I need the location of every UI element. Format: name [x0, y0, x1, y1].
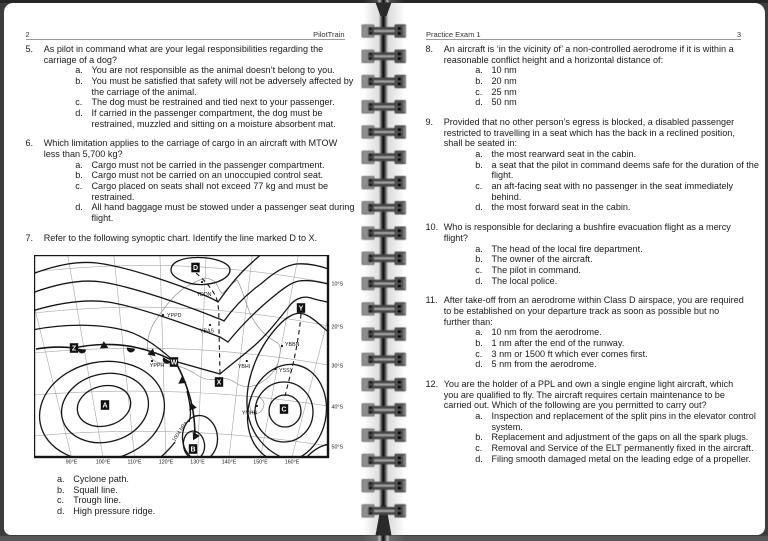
- svg-text:W: W: [171, 360, 178, 367]
- svg-text:30°S: 30°S: [332, 364, 344, 370]
- svg-text:YBBN: YBBN: [285, 342, 300, 348]
- svg-text:YBAS: YBAS: [200, 329, 215, 335]
- svg-text:Z: Z: [72, 346, 77, 353]
- svg-text:Y: Y: [299, 306, 304, 313]
- svg-text:YPPD: YPPD: [167, 313, 182, 319]
- svg-text:10°S: 10°S: [332, 282, 344, 288]
- svg-text:YDDN: YDDN: [196, 292, 211, 298]
- svg-text:20°S: 20°S: [332, 325, 344, 331]
- svg-text:A: A: [102, 403, 107, 410]
- svg-text:YMHB: YMHB: [242, 411, 258, 417]
- svg-text:YSSY: YSSY: [279, 368, 294, 374]
- svg-text:50°S: 50°S: [332, 445, 344, 451]
- svg-text:160°E: 160°E: [285, 460, 300, 466]
- svg-text:D: D: [193, 265, 198, 272]
- svg-text:130°E: 130°E: [190, 460, 205, 466]
- svg-text:B: B: [190, 447, 195, 454]
- svg-text:120°E: 120°E: [159, 460, 174, 466]
- svg-text:150°E: 150°E: [253, 460, 268, 466]
- svg-text:YPPH: YPPH: [150, 363, 165, 369]
- svg-text:YBHI: YBHI: [238, 364, 250, 370]
- svg-text:140°E: 140°E: [222, 460, 237, 466]
- svg-text:110°E: 110°E: [127, 460, 142, 466]
- svg-text:90°E: 90°E: [66, 460, 78, 466]
- svg-text:C: C: [281, 407, 286, 414]
- svg-text:40°S: 40°S: [332, 405, 344, 411]
- svg-text:X: X: [217, 380, 222, 387]
- svg-text:100°E: 100°E: [96, 460, 111, 466]
